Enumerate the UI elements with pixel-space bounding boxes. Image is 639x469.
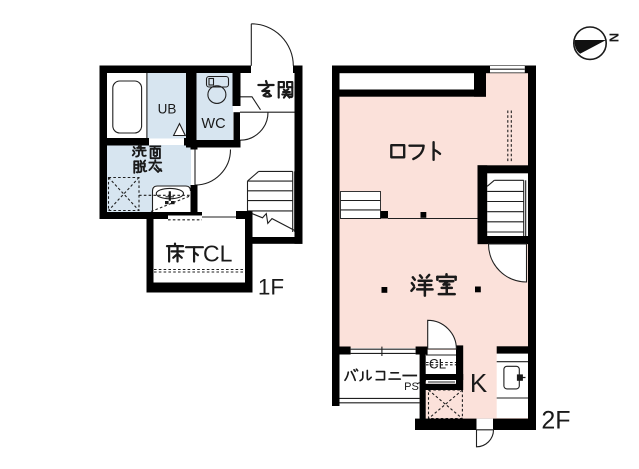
svg-text:UB: UB (158, 101, 177, 116)
svg-text:1F: 1F (258, 275, 284, 300)
svg-text:N: N (607, 33, 622, 42)
svg-text:PS: PS (404, 381, 419, 393)
svg-text:K: K (470, 368, 488, 398)
svg-text:CL: CL (429, 357, 447, 372)
svg-text:WC: WC (201, 116, 225, 132)
svg-text:2F: 2F (541, 406, 570, 434)
svg-text:CL: CL (203, 241, 233, 267)
